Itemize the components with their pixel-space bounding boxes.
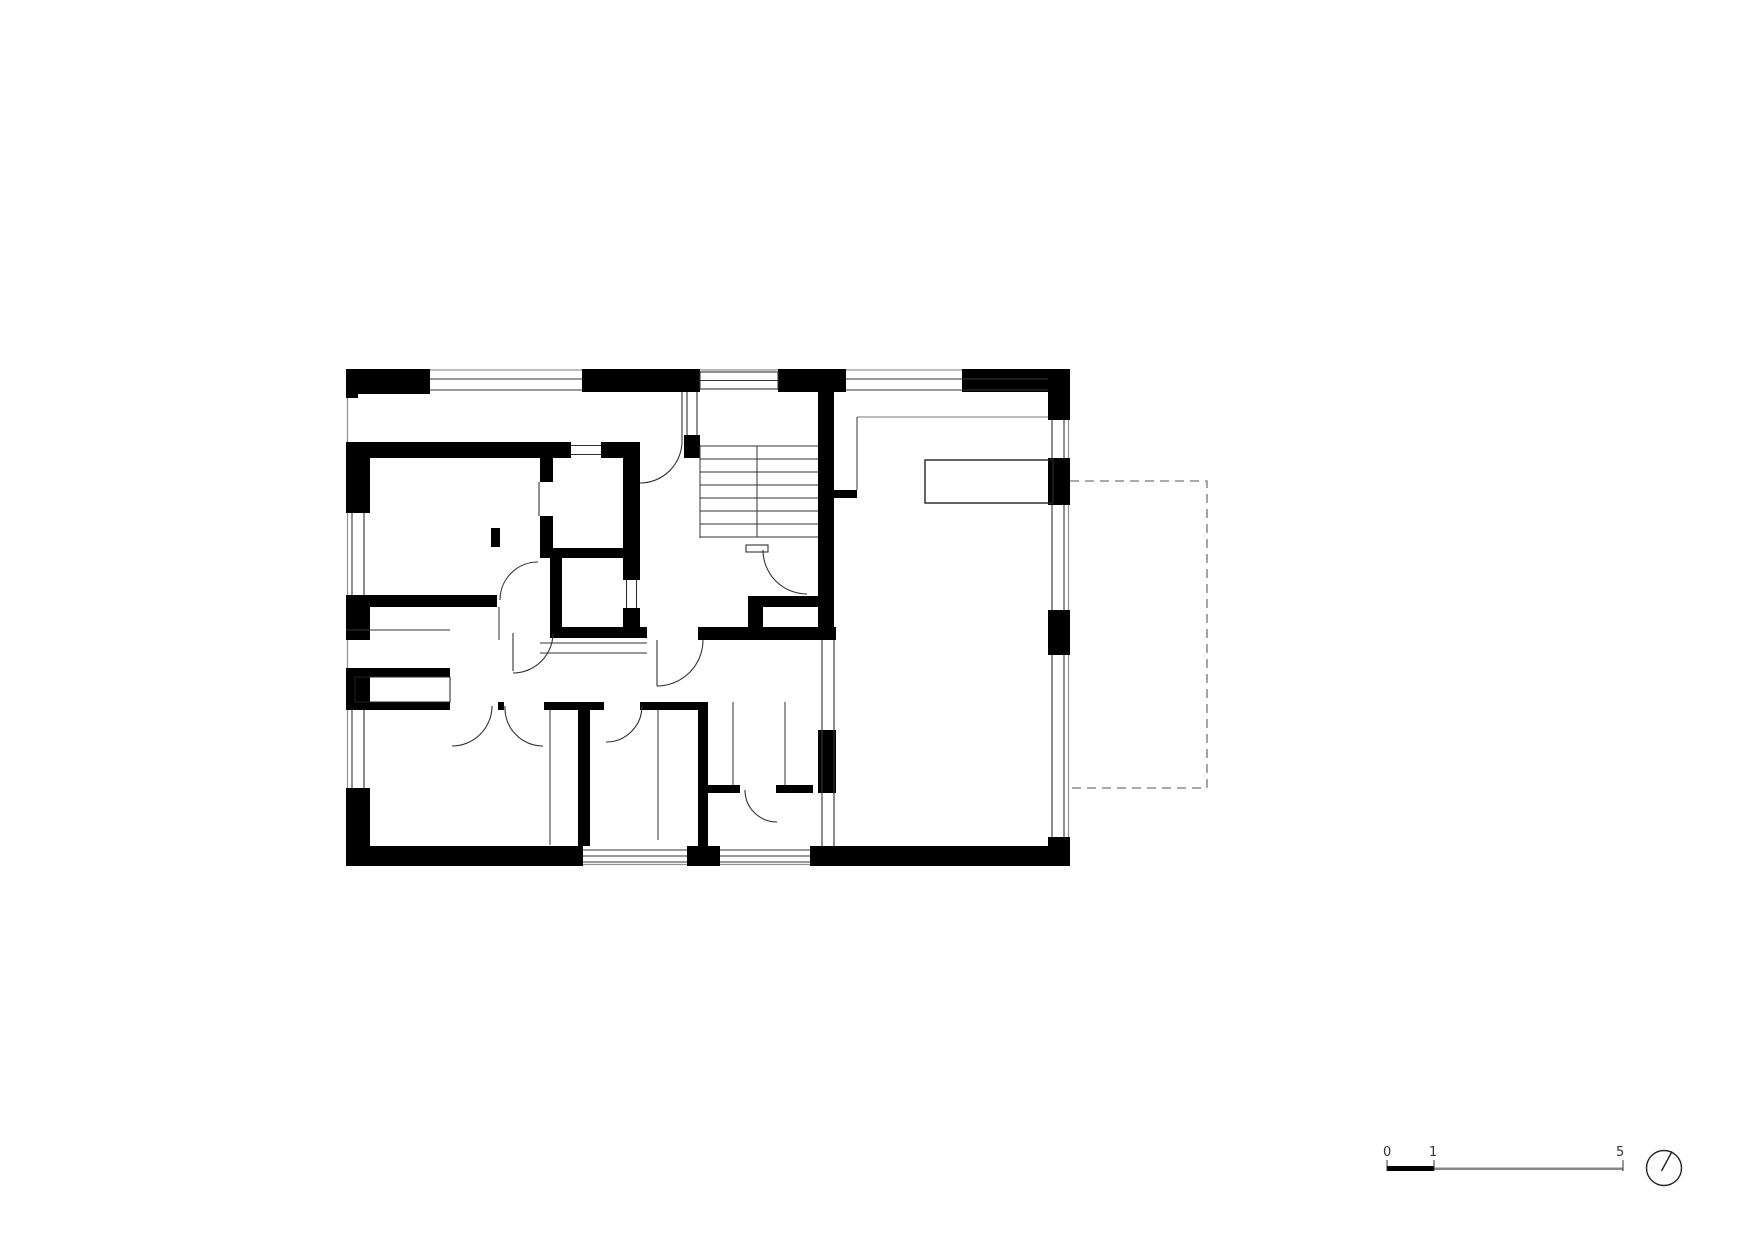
door-arc (745, 790, 777, 822)
wall-segment (550, 627, 647, 638)
door-room-lower-middle (606, 706, 642, 742)
door-hall-lower (657, 640, 703, 686)
wall-segment (640, 702, 698, 710)
wall-segments (346, 369, 1070, 866)
scale-label-0: 0 (1383, 1145, 1391, 1160)
wall-segment (1048, 610, 1070, 655)
wall-segment (498, 702, 504, 710)
door-arc (500, 562, 538, 600)
wall-segment (962, 369, 1070, 392)
door-arc (657, 640, 703, 686)
wall-segment (818, 490, 857, 498)
door-arc (505, 706, 543, 746)
scale-label-1: 1 (1429, 1145, 1437, 1160)
north-indicator (1647, 1151, 1682, 1186)
wall-segment (698, 627, 836, 640)
floor-plan-drawing: 0 1 5 (0, 0, 1755, 1240)
wall-segment (578, 702, 590, 846)
door-room-upper-left (500, 562, 538, 600)
door-room-lower-right (745, 790, 777, 822)
staircase (700, 446, 818, 538)
wall-segment (687, 846, 720, 866)
door-room-lower-left-b (505, 706, 543, 746)
door-leaf (746, 545, 768, 552)
wall-segment (778, 369, 846, 392)
wall-segment (1048, 458, 1070, 505)
scale-label-5: 5 (1616, 1145, 1624, 1160)
wall-segment (540, 548, 640, 558)
wall-segment (590, 702, 604, 710)
wall-segment (540, 455, 553, 482)
door-room-lower-left-a (452, 706, 492, 746)
wall-segment (550, 558, 562, 627)
door-entry (746, 545, 807, 594)
door-arc (640, 441, 682, 483)
door-hall-upper (640, 392, 682, 483)
wall-segment (698, 702, 708, 846)
wall-segment (708, 785, 740, 793)
wall-segment (346, 369, 430, 394)
wall-segment (346, 702, 450, 710)
wall-segment (810, 846, 1070, 866)
wall-segment (582, 369, 700, 392)
wall-segment (346, 392, 358, 398)
furniture (355, 460, 1053, 702)
wall-segment (346, 595, 497, 607)
wall-segment (346, 668, 450, 677)
wall-segment (544, 702, 578, 710)
door-arc (606, 706, 642, 742)
north-circle (1647, 1151, 1682, 1186)
door-arc (452, 706, 492, 746)
wall-segment (346, 788, 370, 866)
wall-segment (684, 435, 700, 458)
wall-segment (346, 846, 583, 866)
wall-segment (623, 455, 640, 580)
scale-bar-segment-1-5 (1434, 1168, 1623, 1171)
scale-bar-segment-0-1 (1387, 1166, 1434, 1171)
chimney (491, 528, 500, 547)
wall-segment (346, 442, 571, 458)
wall-segment (818, 730, 836, 793)
door-arc (763, 550, 807, 594)
wall-segment (776, 785, 813, 793)
wall-segment (1048, 390, 1070, 420)
scale-bar: 0 1 5 (1383, 1145, 1624, 1171)
terrace-dashed-outline (1070, 481, 1207, 788)
sideboard (925, 460, 1053, 503)
floor-plan-sheet: 0 1 5 (0, 0, 1755, 1240)
